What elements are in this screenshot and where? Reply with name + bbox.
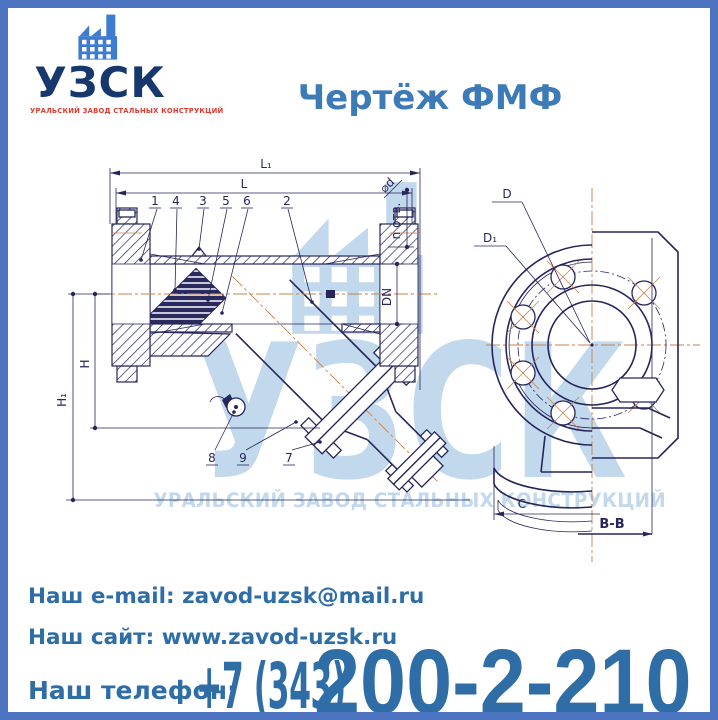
callouts-top: 1 4 3 5 6 2 <box>139 194 314 315</box>
callout-5: 5 <box>222 194 230 208</box>
dim-label-dn: DN <box>380 288 394 306</box>
pipe-bottom-wall-left <box>150 324 232 332</box>
section-label: В-В <box>578 517 652 537</box>
callout-3: 3 <box>199 194 207 208</box>
section-view: D D₁ C В-В <box>474 187 700 562</box>
left-flange-stud-bottom <box>117 366 137 382</box>
company-logo: УЗСК УРАЛЬСКИЙ ЗАВОД СТАЛЬНЫХ КОНСТРУКЦИ… <box>30 14 170 115</box>
callout-8: 8 <box>208 451 216 465</box>
dim-c: C <box>494 446 600 520</box>
dim-label-n-holes: n отв. <box>389 203 403 240</box>
right-flange-stud-bottom <box>395 366 415 382</box>
dim-label-l1: L₁ <box>260 157 272 171</box>
dim-label-c: C <box>518 497 526 511</box>
dim-label-d: D <box>502 187 511 201</box>
callouts-bottom: 8 9 7 <box>206 410 322 465</box>
logo-name: УЗСК <box>30 62 170 104</box>
callout-6: 6 <box>243 194 251 208</box>
branch-outlet <box>188 232 481 525</box>
callout-7: 7 <box>285 451 293 465</box>
callout-2: 2 <box>283 194 291 208</box>
logo-subtitle: УРАЛЬСКИЙ ЗАВОД СТАЛЬНЫХ КОНСТРУКЦИЙ <box>30 107 170 115</box>
main-view: L₁ L H H₁ <box>55 157 481 525</box>
phone-number: 200-2-210 <box>314 636 691 720</box>
bolt-marker <box>326 290 335 298</box>
dim-label-d1: D₁ <box>483 231 497 245</box>
dim-label-h1: H₁ <box>55 393 69 407</box>
email-label: Наш e-mail: <box>28 584 182 609</box>
dim-label-l: L <box>241 177 248 191</box>
callout-4: 4 <box>172 194 180 208</box>
technical-drawing: L₁ L H H₁ <box>0 150 718 580</box>
callout-9: 9 <box>239 451 247 465</box>
blowdown-handle <box>210 394 245 416</box>
page: УЗСК УРАЛЬСКИЙ ЗАВОД СТАЛЬНЫХ КОНСТРУКЦИ… <box>0 0 718 720</box>
hex-bolt <box>612 378 664 402</box>
page-title: Чертёж ФМФ <box>240 78 620 118</box>
dim-l: L <box>116 177 412 224</box>
email-line: Наш e-mail: zavod-uzsk@mail.ru <box>28 584 424 609</box>
branch-knee <box>150 332 230 356</box>
email-value[interactable]: zavod-uzsk@mail.ru <box>182 584 424 609</box>
callout-1: 1 <box>151 194 159 208</box>
section-label-text: В-В <box>599 517 624 532</box>
site-label: Наш сайт: <box>28 625 162 650</box>
dim-label-hole-dia: ⌀d <box>377 175 397 195</box>
factory-icon <box>73 14 127 62</box>
dim-label-h: H <box>78 359 92 368</box>
